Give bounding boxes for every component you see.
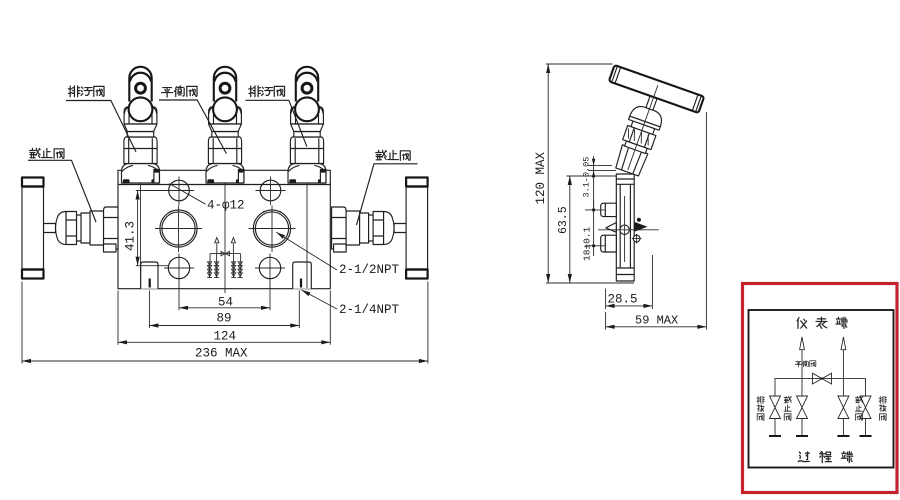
svg-text:89: 89 xyxy=(217,312,232,326)
svg-text:236 MAX: 236 MAX xyxy=(195,347,248,361)
svg-text:54: 54 xyxy=(218,295,233,309)
svg-text:120 MAX: 120 MAX xyxy=(534,151,548,204)
svg-text:2-1/4NPT: 2-1/4NPT xyxy=(339,303,400,317)
svg-text:41.3: 41.3 xyxy=(124,221,138,251)
svg-text:124: 124 xyxy=(214,329,237,343)
svg-text:63.5: 63.5 xyxy=(557,206,570,234)
svg-text:4-φ12: 4-φ12 xyxy=(207,199,245,213)
svg-text:2-1/2NPT: 2-1/2NPT xyxy=(339,263,400,277)
svg-text:28.5: 28.5 xyxy=(608,293,638,307)
svg-text:18±0.1: 18±0.1 xyxy=(582,226,593,261)
svg-text:59 MAX: 59 MAX xyxy=(635,313,678,327)
svg-text:3.1-0.05: 3.1-0.05 xyxy=(582,157,592,198)
